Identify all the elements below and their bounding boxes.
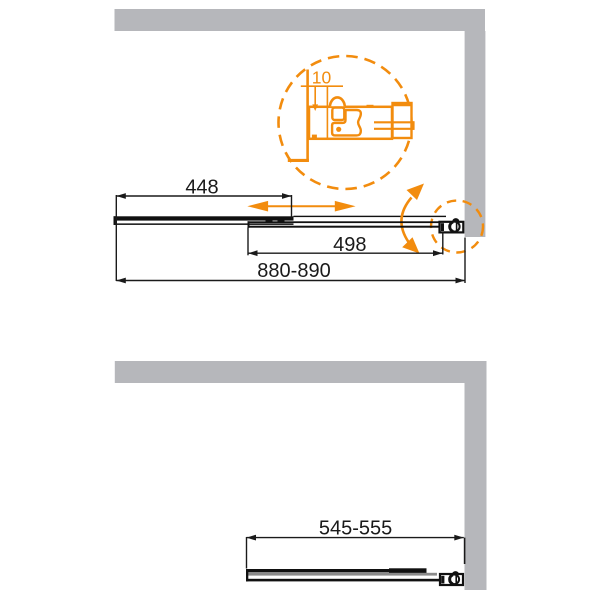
svg-text:448: 448: [185, 177, 218, 199]
svg-text:545-555: 545-555: [319, 518, 392, 540]
svg-text:880-890: 880-890: [257, 260, 330, 282]
svg-text:10: 10: [312, 68, 332, 88]
